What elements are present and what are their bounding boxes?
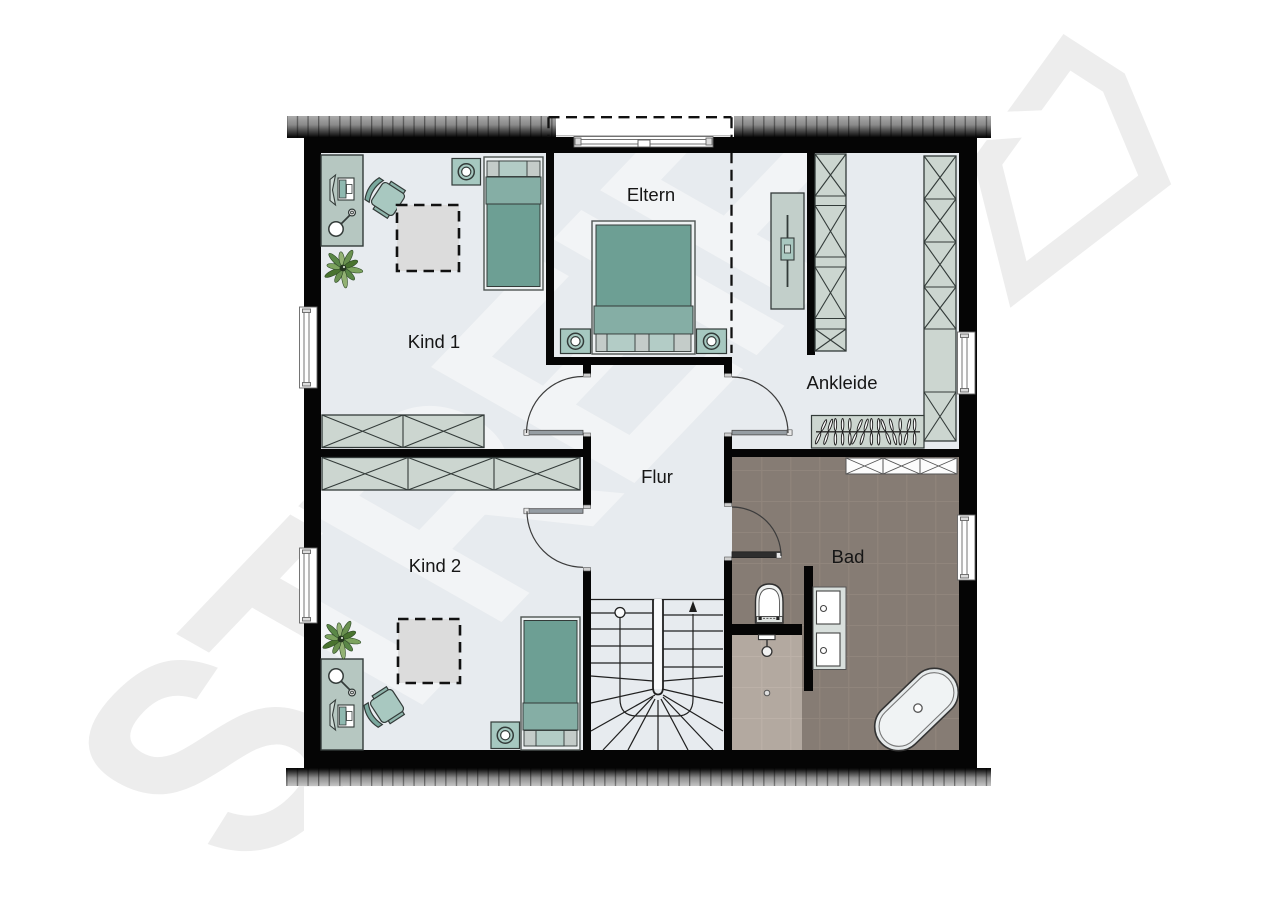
svg-text:Ankleide: Ankleide [807, 372, 878, 393]
svg-text:Eltern: Eltern [627, 184, 675, 205]
svg-text:Kind 1: Kind 1 [408, 331, 460, 352]
svg-text:Flur: Flur [641, 466, 673, 487]
svg-text:Bad: Bad [832, 546, 865, 567]
svg-text:Kind 2: Kind 2 [409, 555, 461, 576]
